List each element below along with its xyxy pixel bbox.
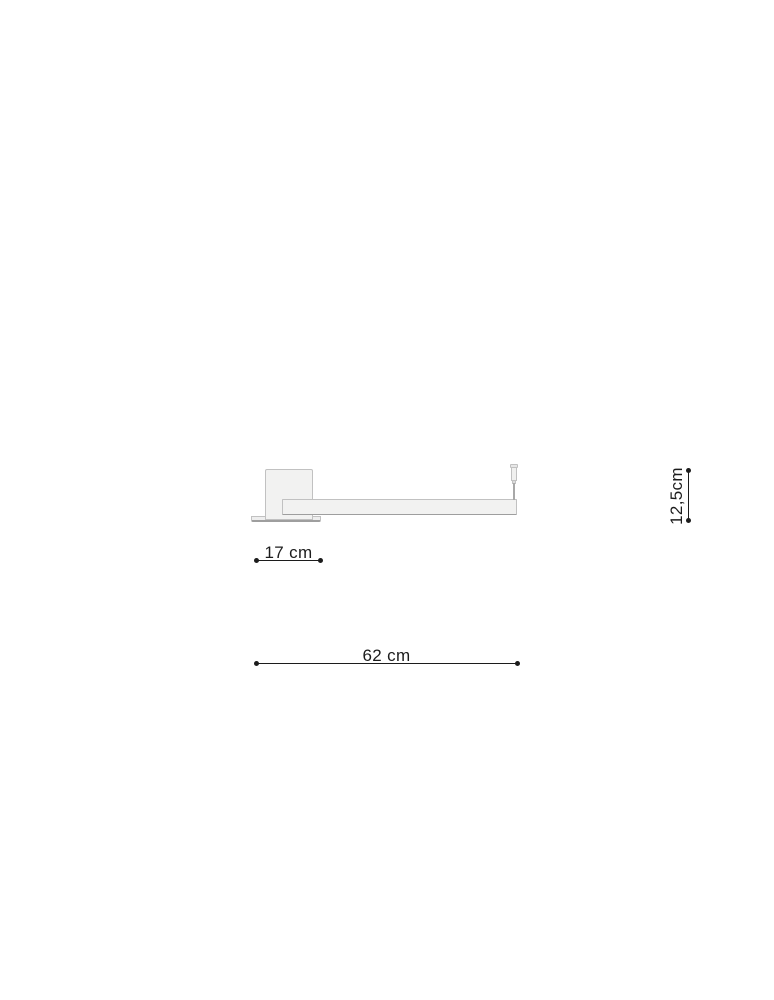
dimension-line	[688, 470, 689, 521]
cable-gland-body	[511, 467, 517, 481]
dimension-line	[256, 560, 321, 561]
dimension-endpoint-dot	[686, 468, 691, 473]
diagram-canvas: 17 cm 62 cm 12,5cm	[0, 0, 774, 1000]
lamp-arm	[282, 499, 517, 515]
dimension-endpoint-dot	[254, 661, 259, 666]
cable-wire	[513, 483, 515, 500]
dimension-line	[256, 663, 517, 664]
dimension-endpoint-dot	[515, 661, 520, 666]
dimension-endpoint-dot	[318, 558, 323, 563]
dimension-endpoint-dot	[254, 558, 259, 563]
dimension-endpoint-dot	[686, 518, 691, 523]
dimension-label-fixture-height: 12,5cm	[667, 467, 687, 525]
